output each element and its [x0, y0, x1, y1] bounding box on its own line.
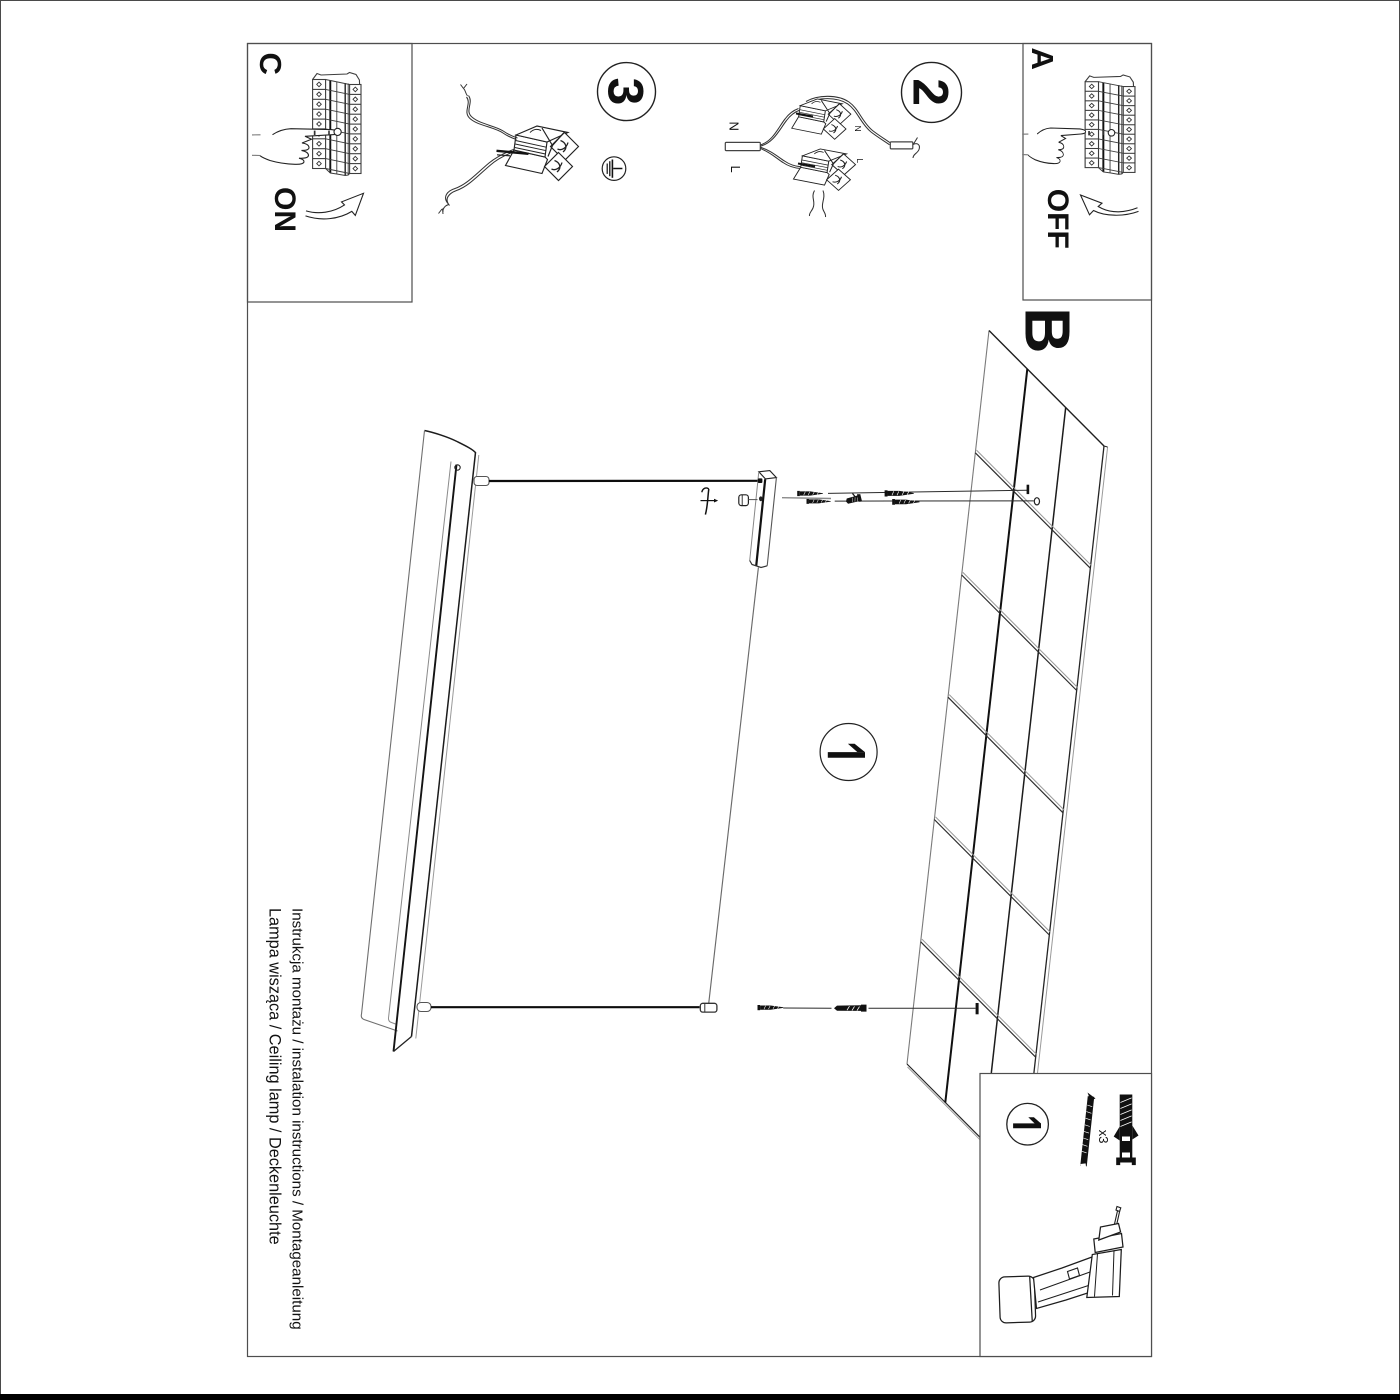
svg-text:3: 3 [597, 78, 653, 106]
svg-text:C: C [253, 53, 288, 75]
svg-text:N: N [727, 122, 742, 131]
svg-text:Lampa wisząca / Ceiling lamp /: Lampa wisząca / Ceiling lamp / Deckenleu… [266, 908, 284, 1245]
svg-text:L: L [855, 158, 865, 163]
svg-text:ON: ON [268, 187, 301, 232]
svg-text:N: N [853, 126, 863, 132]
svg-text:L: L [728, 166, 743, 173]
svg-text:B: B [1012, 307, 1084, 353]
svg-text:2: 2 [902, 78, 958, 106]
svg-text:Instrukcja montażu / instalati: Instrukcja montażu / instalation instruc… [289, 908, 306, 1330]
svg-text:OFF: OFF [1041, 189, 1074, 249]
svg-text:x3: x3 [1096, 1130, 1111, 1144]
svg-text:A: A [1025, 48, 1060, 70]
